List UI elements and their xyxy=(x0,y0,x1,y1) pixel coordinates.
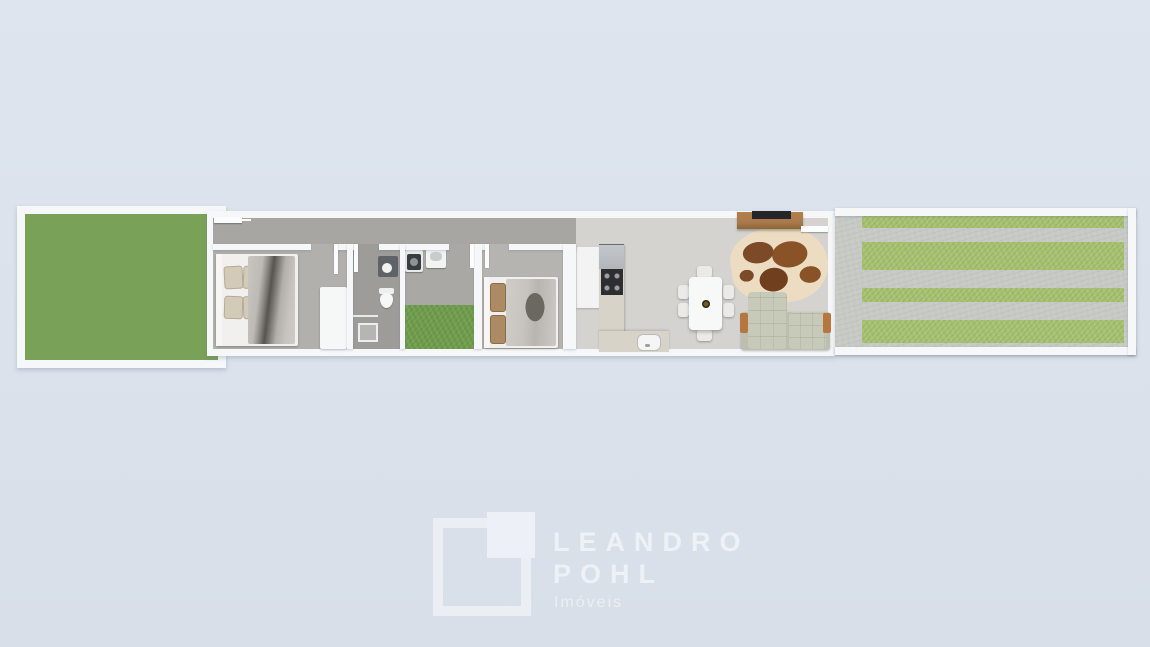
wall xyxy=(835,347,1136,355)
bed-1-duvet xyxy=(248,256,295,344)
driveway-grass-stripe xyxy=(862,288,1124,302)
entry-door xyxy=(801,226,828,232)
dining-chair xyxy=(678,303,689,317)
dining-chair xyxy=(697,329,712,341)
wall xyxy=(347,244,353,349)
sofa-chaise-left xyxy=(748,292,787,349)
sofa-arm-wood xyxy=(823,313,831,333)
page-background: LEANDRO POHL Imóveis xyxy=(0,0,1150,647)
hallway-window-handle xyxy=(242,219,251,221)
hallway-window xyxy=(214,217,242,223)
driveway-grass-stripe xyxy=(862,242,1124,270)
dining-chair xyxy=(678,285,689,299)
wall xyxy=(379,244,449,250)
front-yard xyxy=(17,206,226,368)
bed-2-headboard xyxy=(484,277,489,348)
sofa-arm-wood xyxy=(740,313,748,333)
wall xyxy=(213,244,311,250)
bed-1-headboard xyxy=(216,254,222,346)
pillow xyxy=(223,266,243,290)
cooktop xyxy=(601,269,623,295)
brand-tagline: Imóveis xyxy=(554,594,623,612)
driveway-grass-stripe xyxy=(862,320,1124,343)
kitchen-faucet xyxy=(645,344,650,347)
shower-tray xyxy=(358,323,378,342)
washer-drum-icon xyxy=(410,258,418,266)
brand-name-line2: POHL xyxy=(553,559,664,590)
dining-chair xyxy=(723,285,734,299)
laundry-grass xyxy=(405,305,474,349)
laundry-door xyxy=(470,244,474,268)
dining-chair xyxy=(723,303,734,317)
kitchen-sink xyxy=(637,334,661,351)
wall xyxy=(563,244,576,349)
pillow xyxy=(490,315,506,344)
tv xyxy=(752,211,791,219)
wall xyxy=(1128,208,1136,355)
bed-2-duvet xyxy=(506,279,556,346)
laundry-tank-bowl xyxy=(430,252,442,261)
pillow xyxy=(224,296,244,320)
table-centerpiece xyxy=(702,300,710,308)
shower-partition xyxy=(353,315,378,317)
wall xyxy=(835,208,1136,216)
pillow xyxy=(490,283,506,312)
brand-name-line1: LEANDRO xyxy=(553,527,750,558)
counter-steel-section xyxy=(599,245,624,269)
wall xyxy=(474,244,482,349)
bedroom-1-door xyxy=(334,244,338,274)
brand-logo-square xyxy=(487,512,535,558)
fridge xyxy=(576,247,600,308)
sofa-section-right xyxy=(789,312,826,349)
wardrobe xyxy=(320,287,347,349)
bathroom-door xyxy=(354,244,358,272)
wall xyxy=(400,244,405,349)
driveway-grass-stripe xyxy=(862,216,1124,228)
hallway xyxy=(213,218,576,244)
bedroom-2-door xyxy=(485,244,489,268)
bathroom-sink xyxy=(382,263,392,273)
